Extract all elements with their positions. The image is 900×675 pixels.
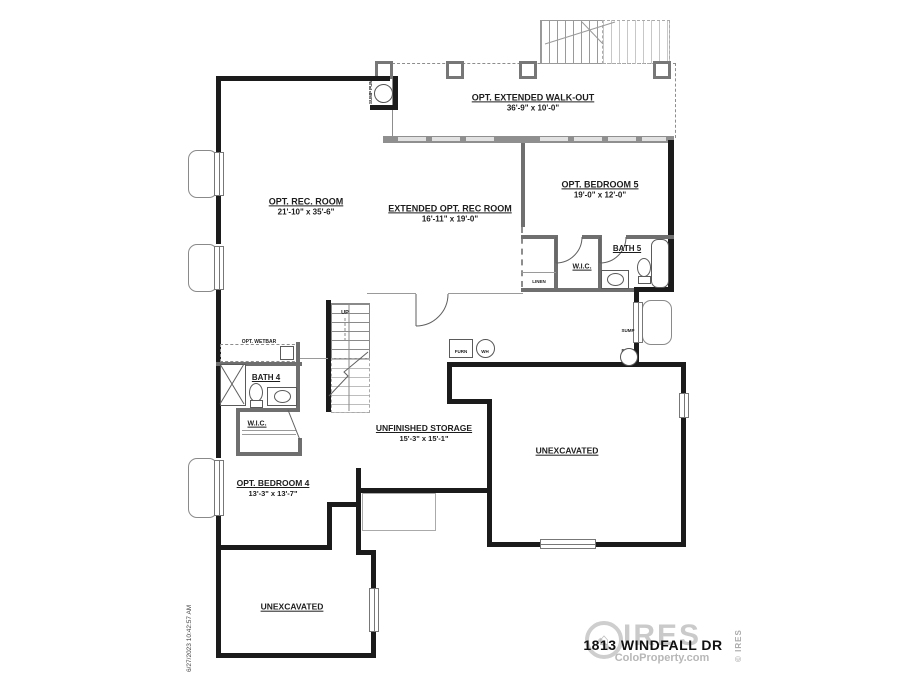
wall	[634, 287, 674, 292]
shower-icon	[220, 364, 246, 406]
wetbar-label: OPT. WETBAR	[242, 329, 276, 349]
window-icon	[574, 137, 602, 141]
wall	[216, 653, 376, 658]
window-icon	[369, 588, 379, 632]
door-arc-icon	[416, 294, 448, 326]
window-icon	[214, 152, 224, 196]
wall	[238, 408, 300, 412]
water-heater-label: WH	[481, 349, 489, 354]
wall	[521, 235, 556, 239]
wall	[447, 399, 492, 404]
window-icon	[540, 137, 568, 141]
crawl-access-icon	[362, 493, 436, 531]
coloproperty-watermark-text: ColoProperty.com	[615, 652, 710, 664]
hall-line	[448, 293, 523, 294]
wall	[216, 550, 221, 658]
sink-icon	[607, 273, 624, 286]
furnace-icon: FURN	[449, 339, 473, 358]
window-icon	[398, 137, 426, 141]
room-label-unexcavated-lower: UNEXCAVATED	[261, 602, 324, 613]
room-label-bedroom4: OPT. BEDROOM 4 13'-3" x 13'-7"	[237, 478, 310, 498]
wall	[681, 416, 686, 547]
wall	[236, 452, 302, 456]
exterior-stairs-icon	[540, 20, 604, 64]
room-label-wic4: W.I.C.	[247, 421, 266, 430]
wall	[447, 362, 686, 367]
toilet-tank-icon	[638, 276, 651, 284]
closet-rod-line	[242, 434, 296, 435]
toilet-icon	[637, 258, 651, 277]
wall	[216, 76, 221, 152]
wall	[216, 545, 332, 550]
floor-plan: SUMP PUMP UP OPT. WETBAR	[0, 0, 900, 675]
toilet-tank-icon	[250, 400, 263, 408]
post-icon	[653, 61, 671, 79]
hall-line	[300, 358, 328, 359]
door-arc-icon	[556, 237, 582, 263]
wall	[216, 76, 390, 81]
room-label-linen: LINEN	[532, 279, 546, 285]
post-icon	[446, 61, 464, 79]
wall	[371, 550, 376, 588]
stairs-upper-icon	[331, 303, 370, 360]
room-label-rec-room: OPT. REC. ROOM 21'-10" x 35'-6"	[269, 196, 344, 217]
wall	[626, 235, 674, 239]
wall	[371, 630, 376, 658]
window-icon	[214, 460, 224, 516]
room-label-storage: UNFINISHED STORAGE 15'-3" x 15'-1"	[376, 423, 472, 443]
wall	[356, 468, 361, 555]
wall	[216, 196, 221, 244]
stairs-lower-icon	[331, 358, 370, 413]
post-icon	[519, 61, 537, 79]
wall	[236, 408, 240, 456]
room-label-extended-rec: EXTENDED OPT. REC ROOM 16'-11" x 19'-0"	[388, 203, 512, 224]
closet-door-line	[288, 410, 300, 440]
wall	[487, 399, 492, 547]
window-icon	[466, 137, 494, 141]
window-icon	[214, 246, 224, 290]
room-label-unexcavated-main: UNEXCAVATED	[536, 446, 599, 457]
bathtub-icon	[651, 239, 669, 288]
window-icon	[432, 137, 460, 141]
room-label-wic5: W.I.C.	[572, 264, 591, 273]
room-label-bath4: BATH 4	[252, 373, 280, 383]
exterior-stairs-dashed-icon	[602, 20, 670, 64]
timestamp-label: 6/27/2023 10:42:57 AM	[186, 605, 193, 672]
water-heater-icon: WH	[476, 339, 495, 358]
window-icon	[679, 393, 689, 418]
stairs-up-label: UP	[341, 300, 349, 320]
window-icon	[540, 539, 596, 549]
room-label-walkout: OPT. EXTENDED WALK-OUT 36'-9" x 10'-0"	[472, 92, 595, 113]
furnace-label: FURN	[455, 349, 468, 354]
room-label-bedroom5: OPT. BEDROOM 5 19'-0" x 12'-0"	[561, 179, 638, 200]
sink-icon	[274, 390, 291, 403]
copyright-watermark-text: © IRES	[734, 629, 743, 662]
sump-pump-icon	[620, 348, 638, 366]
wall	[447, 362, 452, 404]
window-icon	[608, 137, 636, 141]
wall	[554, 235, 558, 292]
sump-pump-icon	[374, 84, 393, 103]
address-label: 1813 WINDFALL DR	[583, 637, 722, 653]
hall-line	[367, 293, 416, 294]
wetbar-sink-icon	[280, 346, 294, 360]
closet-rod-line	[242, 430, 296, 431]
wall	[370, 105, 398, 110]
wall	[327, 505, 332, 550]
wall	[487, 542, 540, 547]
wall	[594, 542, 686, 547]
window-icon	[642, 137, 666, 141]
wall	[681, 362, 686, 393]
window-well-icon	[642, 300, 672, 345]
linen-shelf-line	[521, 272, 556, 273]
wall	[521, 143, 525, 227]
wall	[634, 287, 639, 302]
wall	[298, 438, 302, 456]
room-label-bath5: BATH 5	[613, 244, 641, 254]
